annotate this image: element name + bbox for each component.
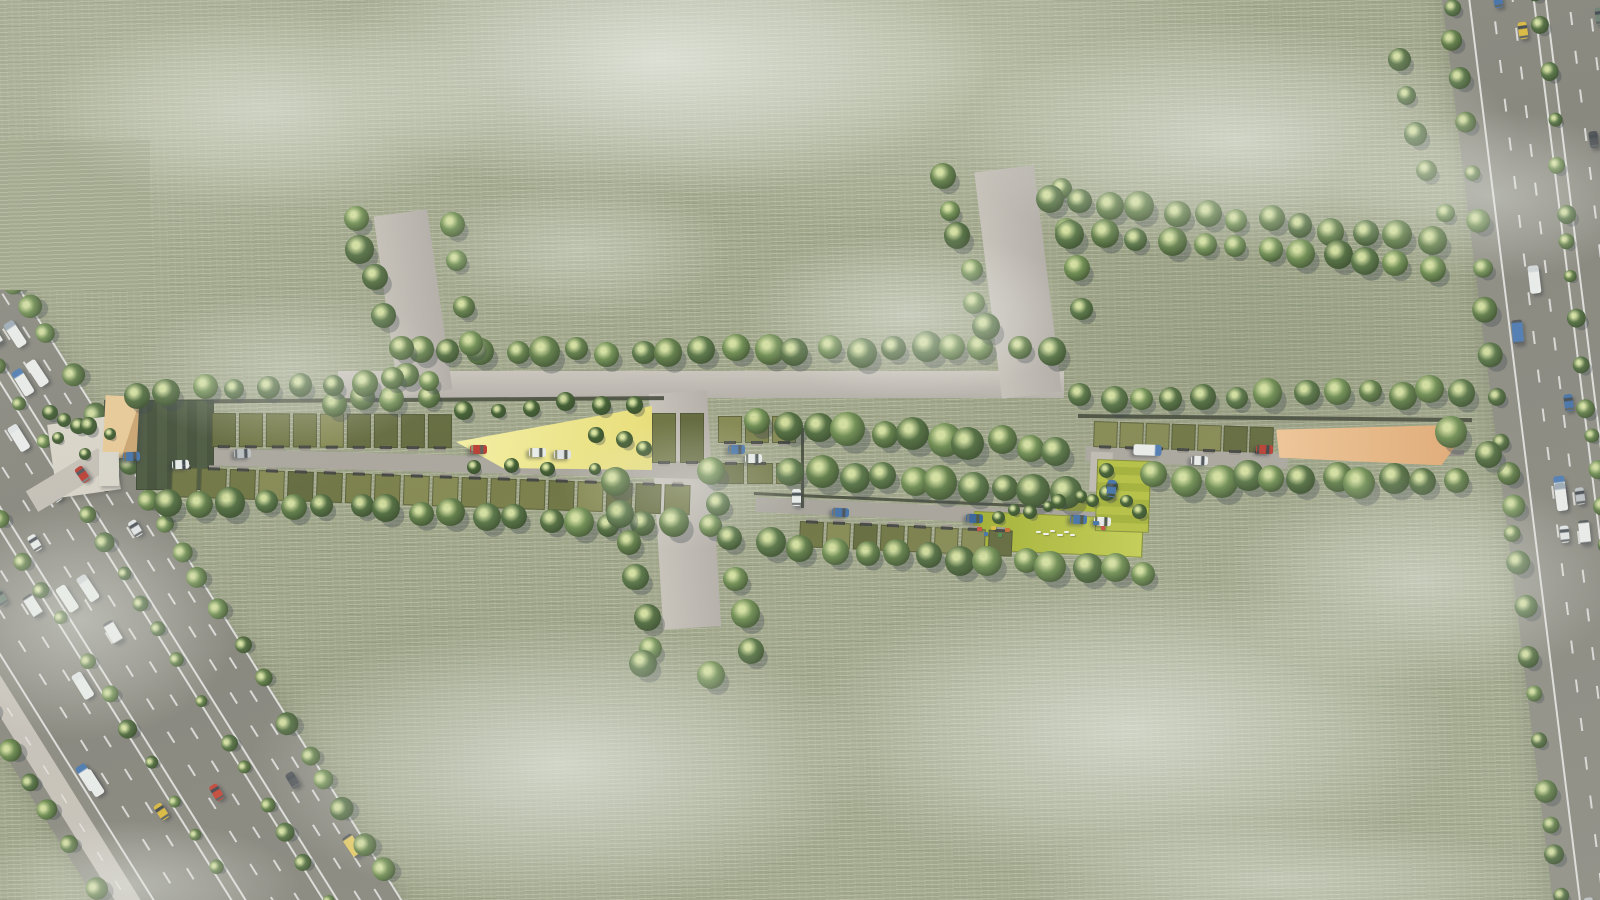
vehicle-car [728,445,745,454]
vehicle-car [965,513,982,523]
vehicles-layer [0,0,1600,900]
lawn-lettering-mark [1064,531,1069,533]
playground-equipment [998,533,1002,537]
vehicle-car [233,448,250,458]
vehicle-car [171,459,188,469]
vehicle-car [1106,479,1116,497]
playground-equipment [991,526,996,530]
vehicle-car [73,464,90,483]
lawn-lettering-mark [1036,531,1041,533]
vehicle-car [529,448,546,457]
playground-equipment [1093,521,1099,525]
vehicle-truck [1133,444,1161,456]
lawn-lettering-mark [1050,530,1055,532]
aerial-site-plan-render [0,0,1600,900]
vehicle-car [554,450,571,459]
playground-equipment [1005,528,1010,532]
vehicle-car [1255,444,1272,454]
vehicle-car [1190,455,1207,465]
vehicle-car [1069,514,1086,524]
playground-equipment [977,527,982,531]
vehicle-car [831,507,848,517]
lawn-lettering-mark [1043,533,1049,535]
vehicle-car [122,451,139,461]
lawn-lettering-mark [1057,534,1063,536]
vehicle-car [792,489,801,506]
playground-equipment [984,532,988,536]
vehicle-car [470,445,487,454]
lawn-lettering-mark [1070,534,1075,536]
playground-equipment [1101,526,1105,530]
vehicle-car [745,454,762,463]
